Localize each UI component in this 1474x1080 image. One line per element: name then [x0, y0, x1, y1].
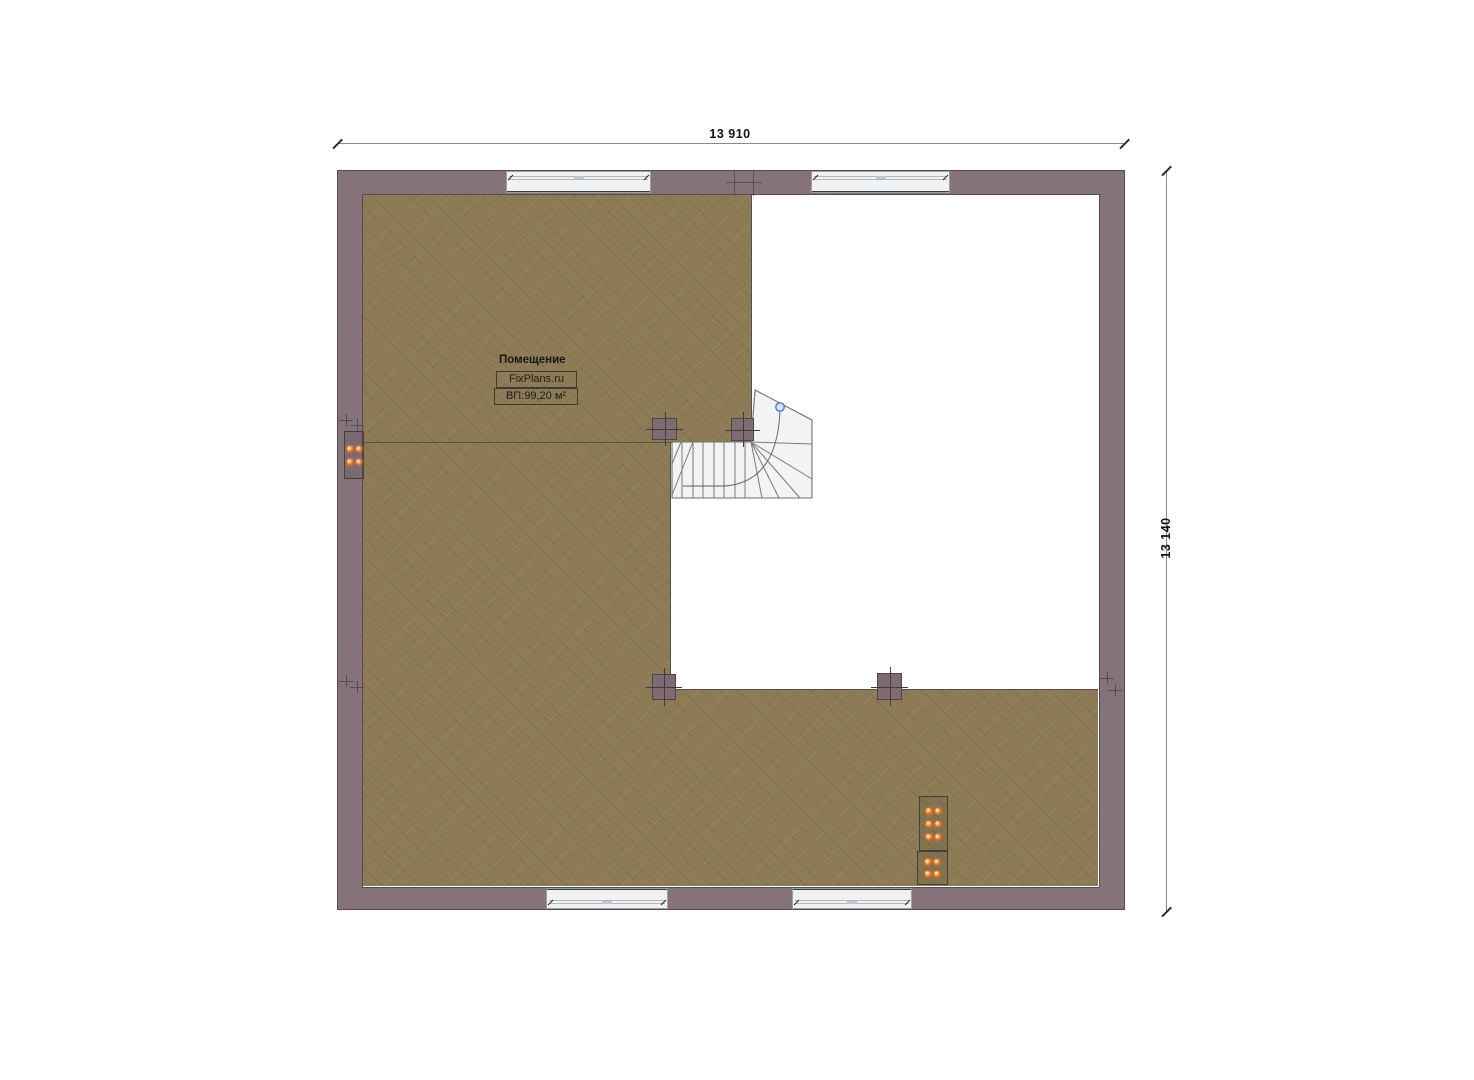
- stair-start-marker-icon: [776, 403, 784, 411]
- window-center-mark: [574, 176, 584, 179]
- outlet-icon: [920, 834, 947, 840]
- window-frame-line: [812, 191, 949, 192]
- axis-marker-icon: [753, 170, 754, 196]
- window: [811, 171, 950, 193]
- outlet-icon: [918, 859, 947, 865]
- right-dimension-label: 13 140: [1159, 500, 1173, 576]
- window: [546, 888, 668, 909]
- axis-marker-icon: [1100, 672, 1114, 684]
- room-area-label: ВП:99,20 м²: [494, 388, 578, 405]
- axis-marker-icon: [726, 182, 762, 183]
- window-center-mark: [847, 901, 857, 904]
- top-dimension-label: 13 910: [680, 127, 780, 141]
- staircase: [663, 386, 815, 500]
- outlet-panel: [919, 796, 948, 851]
- axis-marker-icon: [350, 681, 364, 693]
- window-frame-line: [547, 889, 667, 890]
- room-name-label: Помещение: [499, 354, 566, 366]
- window-frame-line: [507, 191, 650, 192]
- outlet-icon: [920, 808, 947, 814]
- axis-marker-icon: [734, 170, 735, 196]
- column: [652, 418, 677, 440]
- wall-outlet-panel: [344, 431, 364, 479]
- outlet-icon: [918, 871, 947, 877]
- column: [652, 674, 676, 700]
- axis-marker-icon: [1108, 684, 1122, 696]
- window-sill-line: [509, 179, 648, 180]
- outlet-panel: [917, 851, 948, 885]
- column: [877, 673, 902, 700]
- window-frame-line: [793, 889, 911, 890]
- window-center-mark: [602, 901, 612, 904]
- outlet-icon: [345, 446, 363, 452]
- column: [731, 418, 754, 441]
- window-center-mark: [876, 176, 886, 179]
- room-brand-label: FixPlans.ru: [496, 371, 577, 388]
- outlet-icon: [920, 821, 947, 827]
- window: [506, 171, 651, 193]
- outlet-icon: [345, 459, 363, 465]
- axis-marker-icon: [350, 419, 364, 431]
- window: [792, 888, 912, 909]
- window-sill-line: [814, 179, 947, 180]
- top-dimension-line: [337, 143, 1125, 144]
- floor-plan: 13 910 13 140: [0, 0, 1474, 1080]
